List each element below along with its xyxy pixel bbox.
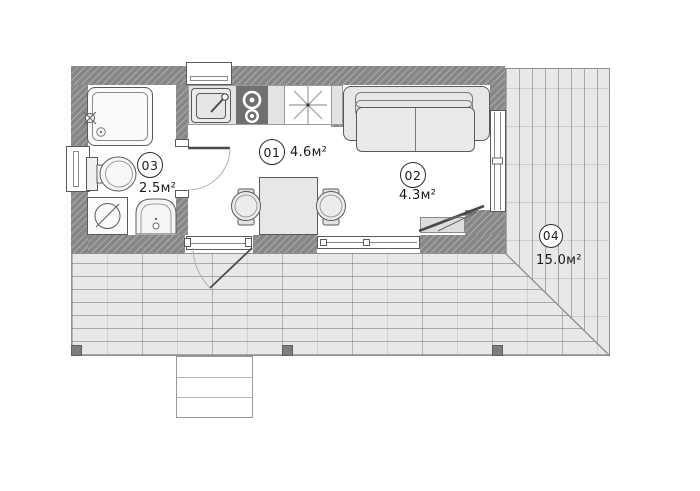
room-label-03: 03 bbox=[137, 152, 163, 178]
wall-bottom-right bbox=[420, 235, 505, 253]
wall-bottom-pier bbox=[253, 235, 317, 253]
area-text: 15.0м² bbox=[536, 253, 582, 268]
washing-machine-icon bbox=[87, 197, 128, 235]
door-jamb bbox=[245, 238, 252, 247]
window-frame-line bbox=[190, 76, 228, 81]
wall-stub-entry bbox=[465, 210, 505, 235]
stair-step-line bbox=[177, 397, 252, 398]
room-label-02: 02 bbox=[400, 162, 426, 188]
room-label-01: 01 bbox=[259, 139, 285, 165]
entry-door-threshold bbox=[186, 236, 252, 250]
room-number: 04 bbox=[543, 229, 559, 243]
kitchen-sink-icon bbox=[191, 88, 231, 123]
room-area-04: 15.0м² bbox=[536, 253, 582, 268]
wall-bottom-left bbox=[88, 235, 185, 253]
floor-plan-canvas: 01 4.6м² 02 4.3м² 03 2.5м² 04 15.0м² bbox=[0, 0, 700, 491]
shower-tray-inner bbox=[92, 92, 148, 141]
shower-icon bbox=[87, 87, 153, 146]
window-frame-line bbox=[73, 151, 79, 187]
room-number: 01 bbox=[264, 145, 281, 160]
ceiling-light-panel bbox=[284, 85, 332, 125]
door-jamb bbox=[175, 190, 189, 198]
threshold-line bbox=[191, 243, 247, 244]
deck-post-icon bbox=[282, 345, 293, 356]
room-number: 03 bbox=[142, 158, 159, 173]
room-number: 02 bbox=[405, 168, 422, 183]
glass-door-right bbox=[490, 110, 506, 212]
entry-step-block bbox=[420, 217, 465, 233]
deck-post-icon bbox=[71, 345, 82, 356]
dining-table-icon bbox=[259, 177, 318, 235]
area-text: 4.3м² bbox=[399, 188, 436, 203]
area-text: 2.5м² bbox=[139, 181, 176, 196]
wall-partition-bath-lower bbox=[176, 192, 188, 235]
deck-post-icon bbox=[492, 345, 503, 356]
toilet-tank bbox=[86, 157, 98, 191]
window-handle bbox=[320, 239, 327, 246]
wall-partition-bath-upper bbox=[176, 85, 188, 146]
door-jamb bbox=[184, 238, 191, 247]
room-area-01: 4.6м² bbox=[290, 145, 327, 160]
room-label-04: 04 bbox=[539, 224, 563, 248]
room-area-03: 2.5м² bbox=[139, 181, 176, 196]
window-handle bbox=[363, 239, 370, 246]
area-text: 4.6м² bbox=[290, 145, 327, 160]
stairs bbox=[176, 356, 253, 418]
stair-step-line bbox=[177, 377, 252, 378]
door-jamb bbox=[175, 139, 189, 147]
wall-right-upper bbox=[490, 85, 505, 110]
hob-icon bbox=[236, 86, 268, 124]
room-area-02: 4.3м² bbox=[399, 188, 436, 203]
wall-top bbox=[71, 66, 505, 85]
sink-basin bbox=[196, 93, 226, 119]
sofa-seat-divider bbox=[415, 108, 416, 151]
window-kitchen-top bbox=[186, 62, 232, 85]
